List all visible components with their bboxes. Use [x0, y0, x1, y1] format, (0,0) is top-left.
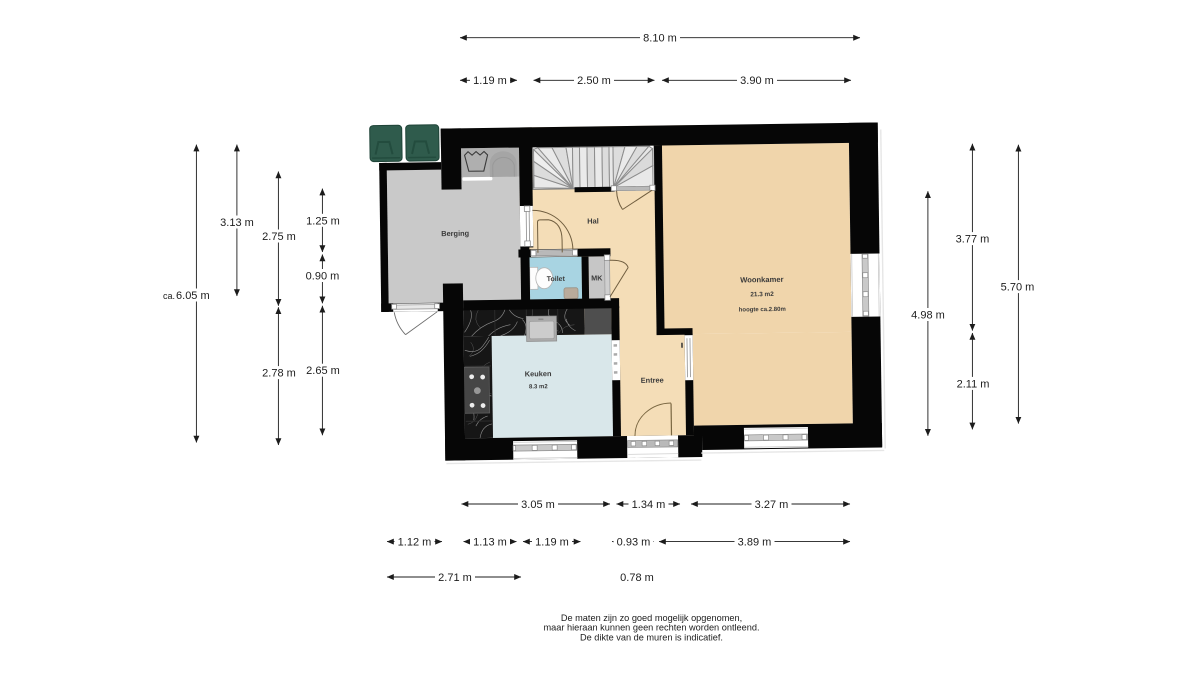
- svg-text:1.13 m: 1.13 m: [473, 536, 507, 548]
- svg-text:1.34 m: 1.34 m: [632, 499, 666, 511]
- svg-text:De dikte van de muren is indic: De dikte van de muren is indicatief.: [580, 632, 723, 642]
- svg-text:1.12 m: 1.12 m: [398, 536, 432, 548]
- svg-text:3.77 m: 3.77 m: [956, 234, 990, 246]
- svg-text:1.19 m: 1.19 m: [535, 536, 569, 548]
- svg-text:Entree: Entree: [641, 376, 664, 385]
- svg-text:2.65 m: 2.65 m: [306, 365, 340, 377]
- svg-text:2.71 m: 2.71 m: [438, 572, 472, 584]
- svg-text:MK: MK: [591, 273, 603, 282]
- svg-text:3.13 m: 3.13 m: [220, 217, 254, 229]
- svg-text:Toilet: Toilet: [547, 276, 566, 283]
- svg-text:3.89 m: 3.89 m: [738, 536, 772, 548]
- svg-text:8.10 m: 8.10 m: [643, 33, 677, 45]
- svg-text:5.70 m: 5.70 m: [1001, 282, 1035, 294]
- svg-text:maar hieraan kunnen geen recht: maar hieraan kunnen geen rechten worden …: [543, 623, 759, 633]
- svg-text:8.3 m2: 8.3 m2: [529, 384, 548, 390]
- svg-text:Keuken: Keuken: [525, 369, 552, 378]
- svg-text:21.3 m2: 21.3 m2: [750, 291, 774, 298]
- svg-text:2.75 m: 2.75 m: [262, 231, 296, 243]
- svg-text:0.93 m: 0.93 m: [617, 536, 651, 548]
- svg-text:Berging: Berging: [441, 229, 470, 238]
- svg-text:De maten zijn zo goed mogelijk: De maten zijn zo goed mogelijk opgenomen…: [561, 613, 742, 623]
- svg-text:Woonkamer: Woonkamer: [740, 275, 783, 285]
- svg-text:3.90 m: 3.90 m: [740, 75, 774, 87]
- svg-text:3.05 m: 3.05 m: [521, 499, 555, 511]
- svg-text:ca.6.05 m: ca.6.05 m: [163, 290, 210, 302]
- svg-text:0.78 m: 0.78 m: [620, 572, 654, 584]
- svg-text:0.90 m: 0.90 m: [306, 271, 340, 283]
- svg-text:2.50 m: 2.50 m: [577, 75, 611, 87]
- svg-text:1.19 m: 1.19 m: [473, 75, 507, 87]
- svg-text:1.25 m: 1.25 m: [306, 215, 340, 227]
- svg-text:2.78 m: 2.78 m: [262, 368, 296, 380]
- svg-text:3.27 m: 3.27 m: [755, 499, 789, 511]
- svg-text:Hal: Hal: [587, 216, 599, 225]
- svg-text:hoogte ca.2.80m: hoogte ca.2.80m: [739, 307, 786, 314]
- svg-text:4.98 m: 4.98 m: [911, 310, 945, 322]
- svg-text:2.11 m: 2.11 m: [957, 378, 990, 390]
